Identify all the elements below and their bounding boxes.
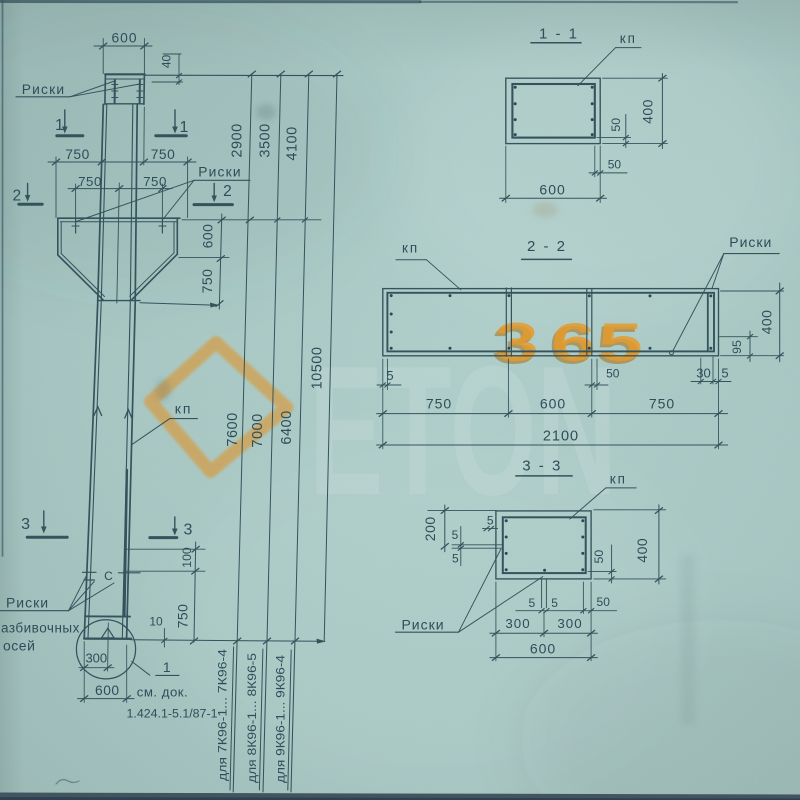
svg-text:750: 750 — [151, 147, 176, 162]
svg-text:2: 2 — [223, 183, 232, 200]
svg-text:400: 400 — [634, 538, 650, 563]
svg-text:750: 750 — [199, 269, 215, 294]
svg-text:40: 40 — [160, 55, 174, 69]
svg-text:600: 600 — [539, 181, 565, 197]
svg-text:Риски: Риски — [22, 82, 66, 97]
svg-text:2900: 2900 — [230, 123, 246, 157]
svg-text:200: 200 — [422, 516, 438, 541]
svg-text:50: 50 — [606, 367, 620, 381]
svg-text:Риски: Риски — [401, 616, 444, 632]
svg-text:Риски: Риски — [6, 595, 49, 611]
svg-text:кп: кп — [175, 401, 193, 417]
svg-text:600: 600 — [95, 683, 120, 698]
svg-text:300: 300 — [505, 616, 530, 631]
svg-text:1: 1 — [55, 117, 64, 134]
svg-text:50: 50 — [592, 550, 606, 564]
svg-text:7600: 7600 — [225, 412, 241, 446]
svg-text:3500: 3500 — [257, 123, 273, 157]
svg-text:50: 50 — [608, 157, 622, 171]
svg-text:600: 600 — [111, 31, 137, 46]
svg-text:для 7К96-1... 7К96-4: для 7К96-1... 7К96-4 — [216, 649, 230, 781]
svg-text:С: С — [104, 569, 113, 583]
svg-text:5: 5 — [551, 596, 558, 610]
svg-text:5: 5 — [528, 596, 535, 610]
svg-text:750: 750 — [426, 395, 452, 411]
svg-text:750: 750 — [174, 604, 190, 629]
svg-text:10: 10 — [149, 615, 163, 629]
svg-text:разбивочных: разбивочных — [0, 621, 80, 636]
svg-text:5: 5 — [721, 366, 728, 381]
svg-text:осей: осей — [3, 638, 35, 654]
svg-text:600: 600 — [199, 224, 215, 249]
svg-text:4100: 4100 — [285, 126, 301, 160]
svg-text:95: 95 — [730, 340, 744, 354]
svg-text:600: 600 — [530, 641, 556, 657]
svg-text:5: 5 — [452, 528, 459, 542]
svg-text:750: 750 — [143, 174, 167, 189]
svg-text:7000: 7000 — [250, 413, 266, 447]
svg-text:600: 600 — [540, 395, 566, 411]
svg-text:300: 300 — [85, 650, 107, 665]
svg-text:30: 30 — [696, 366, 710, 381]
svg-text:10500: 10500 — [310, 347, 326, 390]
svg-text:1 - 1: 1 - 1 — [539, 26, 579, 43]
svg-text:2100: 2100 — [543, 429, 579, 445]
svg-text:5: 5 — [487, 513, 494, 527]
svg-text:5: 5 — [386, 368, 393, 383]
svg-text:Риски: Риски — [729, 234, 772, 250]
svg-text:Риски: Риски — [198, 165, 242, 180]
svg-text:2: 2 — [12, 188, 21, 205]
svg-text:300: 300 — [557, 616, 582, 631]
svg-text:см. док.: см. док. — [137, 684, 188, 699]
svg-text:1.424.1-5.1/87-1: 1.424.1-5.1/87-1 — [127, 706, 218, 720]
svg-text:1: 1 — [163, 659, 171, 675]
svg-text:кп: кп — [610, 471, 627, 486]
svg-text:3: 3 — [21, 516, 30, 533]
svg-text:100: 100 — [180, 547, 194, 568]
svg-text:6400: 6400 — [279, 410, 295, 444]
svg-text:400: 400 — [758, 310, 774, 335]
svg-text:750: 750 — [649, 395, 675, 411]
svg-text:1: 1 — [180, 119, 189, 136]
svg-text:5: 5 — [452, 552, 459, 566]
svg-text:400: 400 — [639, 99, 655, 124]
svg-text:3: 3 — [184, 522, 193, 539]
svg-text:50: 50 — [597, 595, 611, 609]
svg-text:50: 50 — [609, 118, 623, 132]
svg-text:для 8К96-1... 8К96-5: для 8К96-1... 8К96-5 — [245, 653, 259, 783]
svg-text:750: 750 — [78, 174, 102, 189]
svg-text:3 - 3: 3 - 3 — [522, 458, 562, 475]
svg-text:кп: кп — [402, 240, 419, 255]
svg-text:750: 750 — [65, 147, 90, 162]
svg-text:для 9К96-1... 9К96-4: для 9К96-1... 9К96-4 — [273, 655, 287, 783]
svg-text:кп: кп — [620, 31, 637, 46]
svg-text:2 - 2: 2 - 2 — [527, 238, 567, 255]
